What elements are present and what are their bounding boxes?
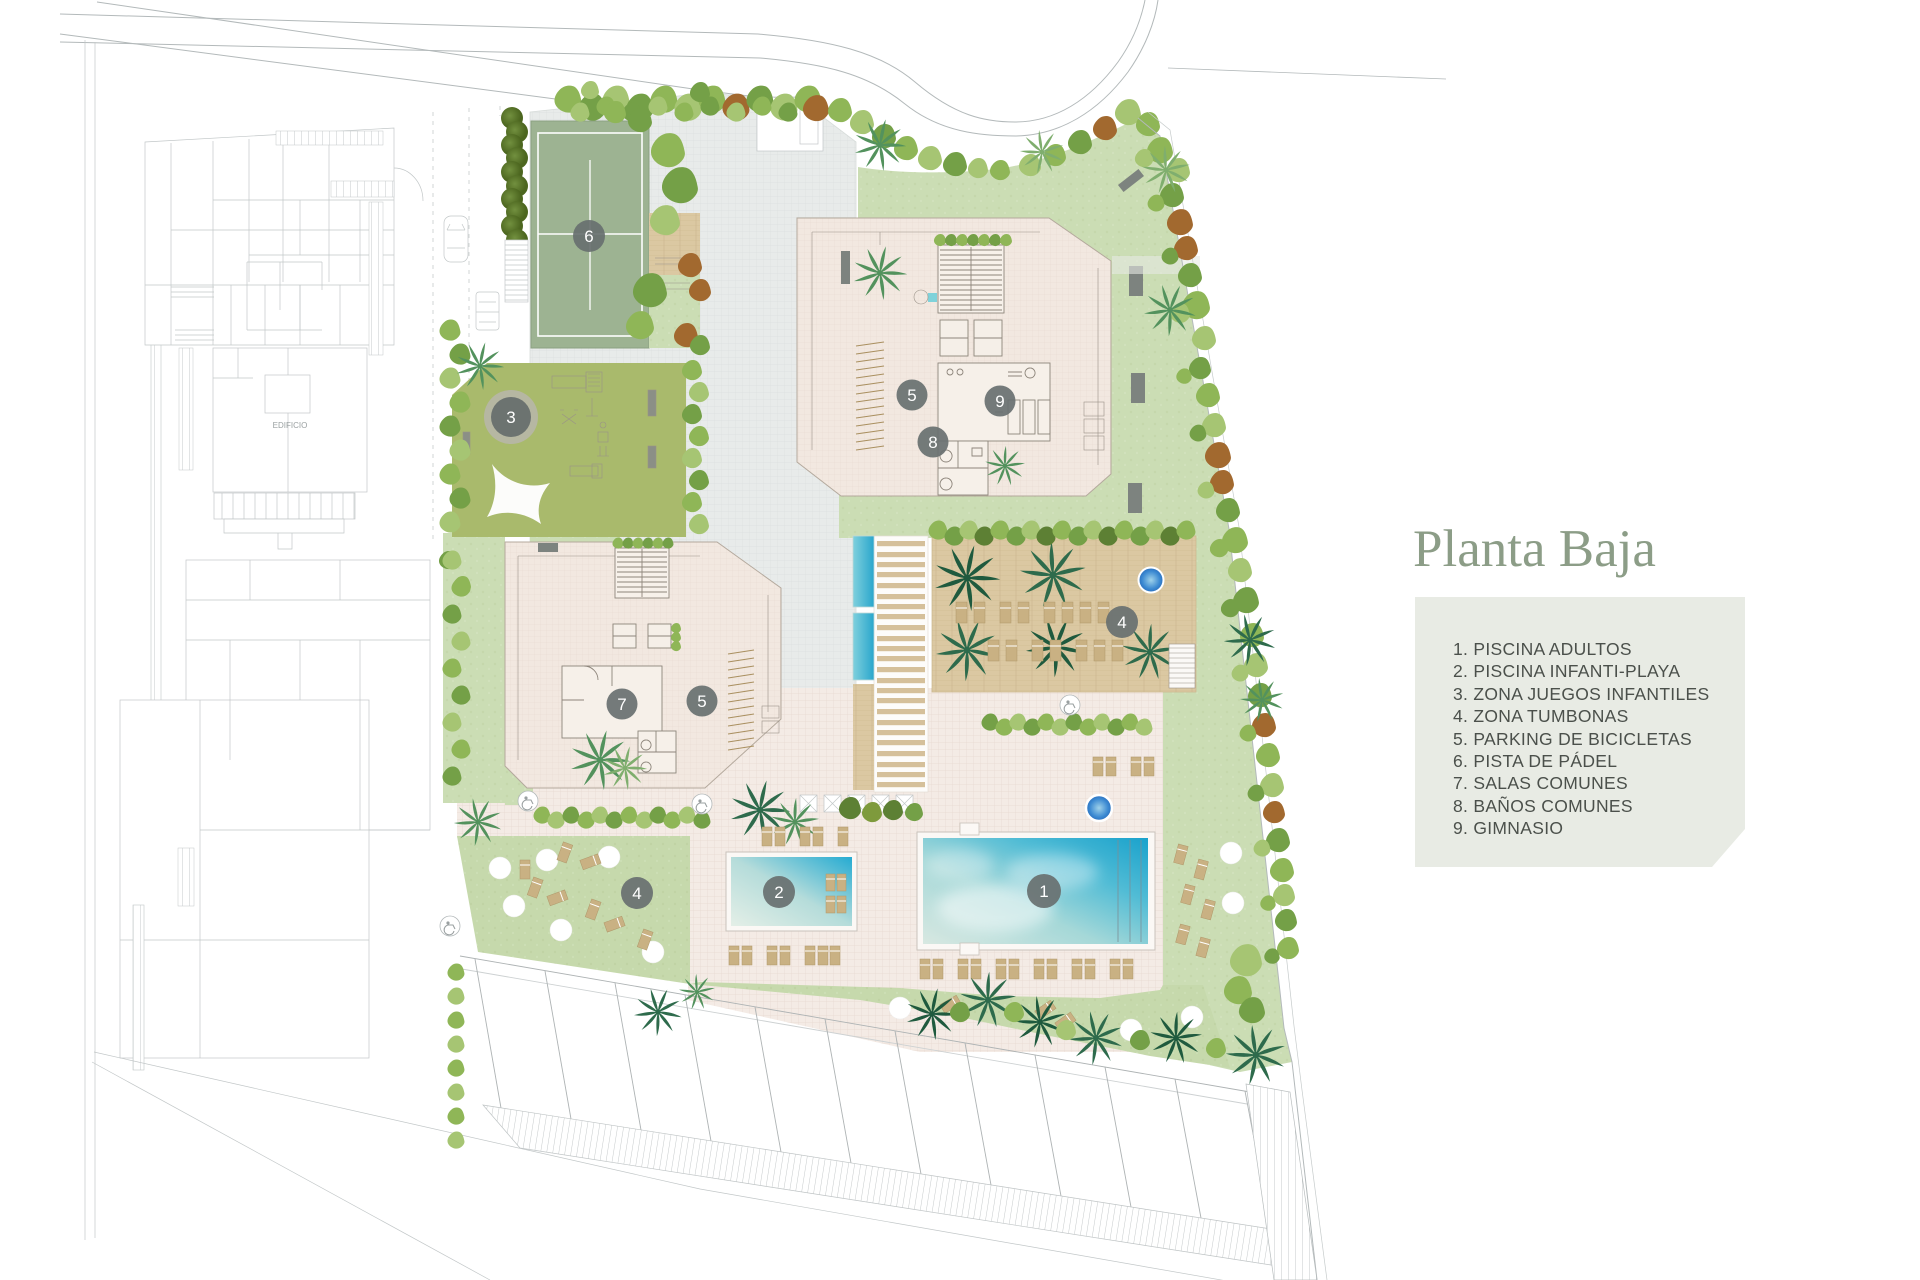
svg-text:7: 7 — [617, 695, 626, 714]
svg-text:9: 9 — [995, 392, 1004, 411]
svg-text:8: 8 — [928, 433, 937, 452]
svg-text:6: 6 — [584, 227, 593, 246]
svg-text:2. PISCINA INFANTI-PLAYA: 2. PISCINA INFANTI-PLAYA — [1453, 661, 1680, 681]
svg-text:1: 1 — [1039, 882, 1048, 901]
svg-text:4: 4 — [1117, 613, 1126, 632]
svg-text:5: 5 — [697, 692, 706, 711]
svg-text:Planta Baja: Planta Baja — [1413, 520, 1656, 578]
svg-text:6. PISTA DE PÁDEL: 6. PISTA DE PÁDEL — [1453, 751, 1617, 771]
svg-text:3: 3 — [506, 408, 515, 427]
svg-text:4. ZONA TUMBONAS: 4. ZONA TUMBONAS — [1453, 706, 1629, 726]
svg-text:8. BAÑOS COMUNES: 8. BAÑOS COMUNES — [1453, 795, 1633, 816]
svg-text:1. PISCINA ADULTOS: 1. PISCINA ADULTOS — [1453, 639, 1632, 659]
svg-text:3. ZONA JUEGOS INFANTILES: 3. ZONA JUEGOS INFANTILES — [1453, 684, 1709, 704]
svg-text:5: 5 — [907, 386, 916, 405]
svg-text:EDIFICIO: EDIFICIO — [273, 421, 308, 430]
svg-text:4: 4 — [632, 884, 641, 903]
svg-text:5. PARKING DE BICICLETAS: 5. PARKING DE BICICLETAS — [1453, 729, 1692, 749]
svg-text:7. SALAS COMUNES: 7. SALAS COMUNES — [1453, 773, 1628, 793]
svg-text:9. GIMNASIO: 9. GIMNASIO — [1453, 818, 1563, 838]
svg-text:2: 2 — [774, 883, 783, 902]
